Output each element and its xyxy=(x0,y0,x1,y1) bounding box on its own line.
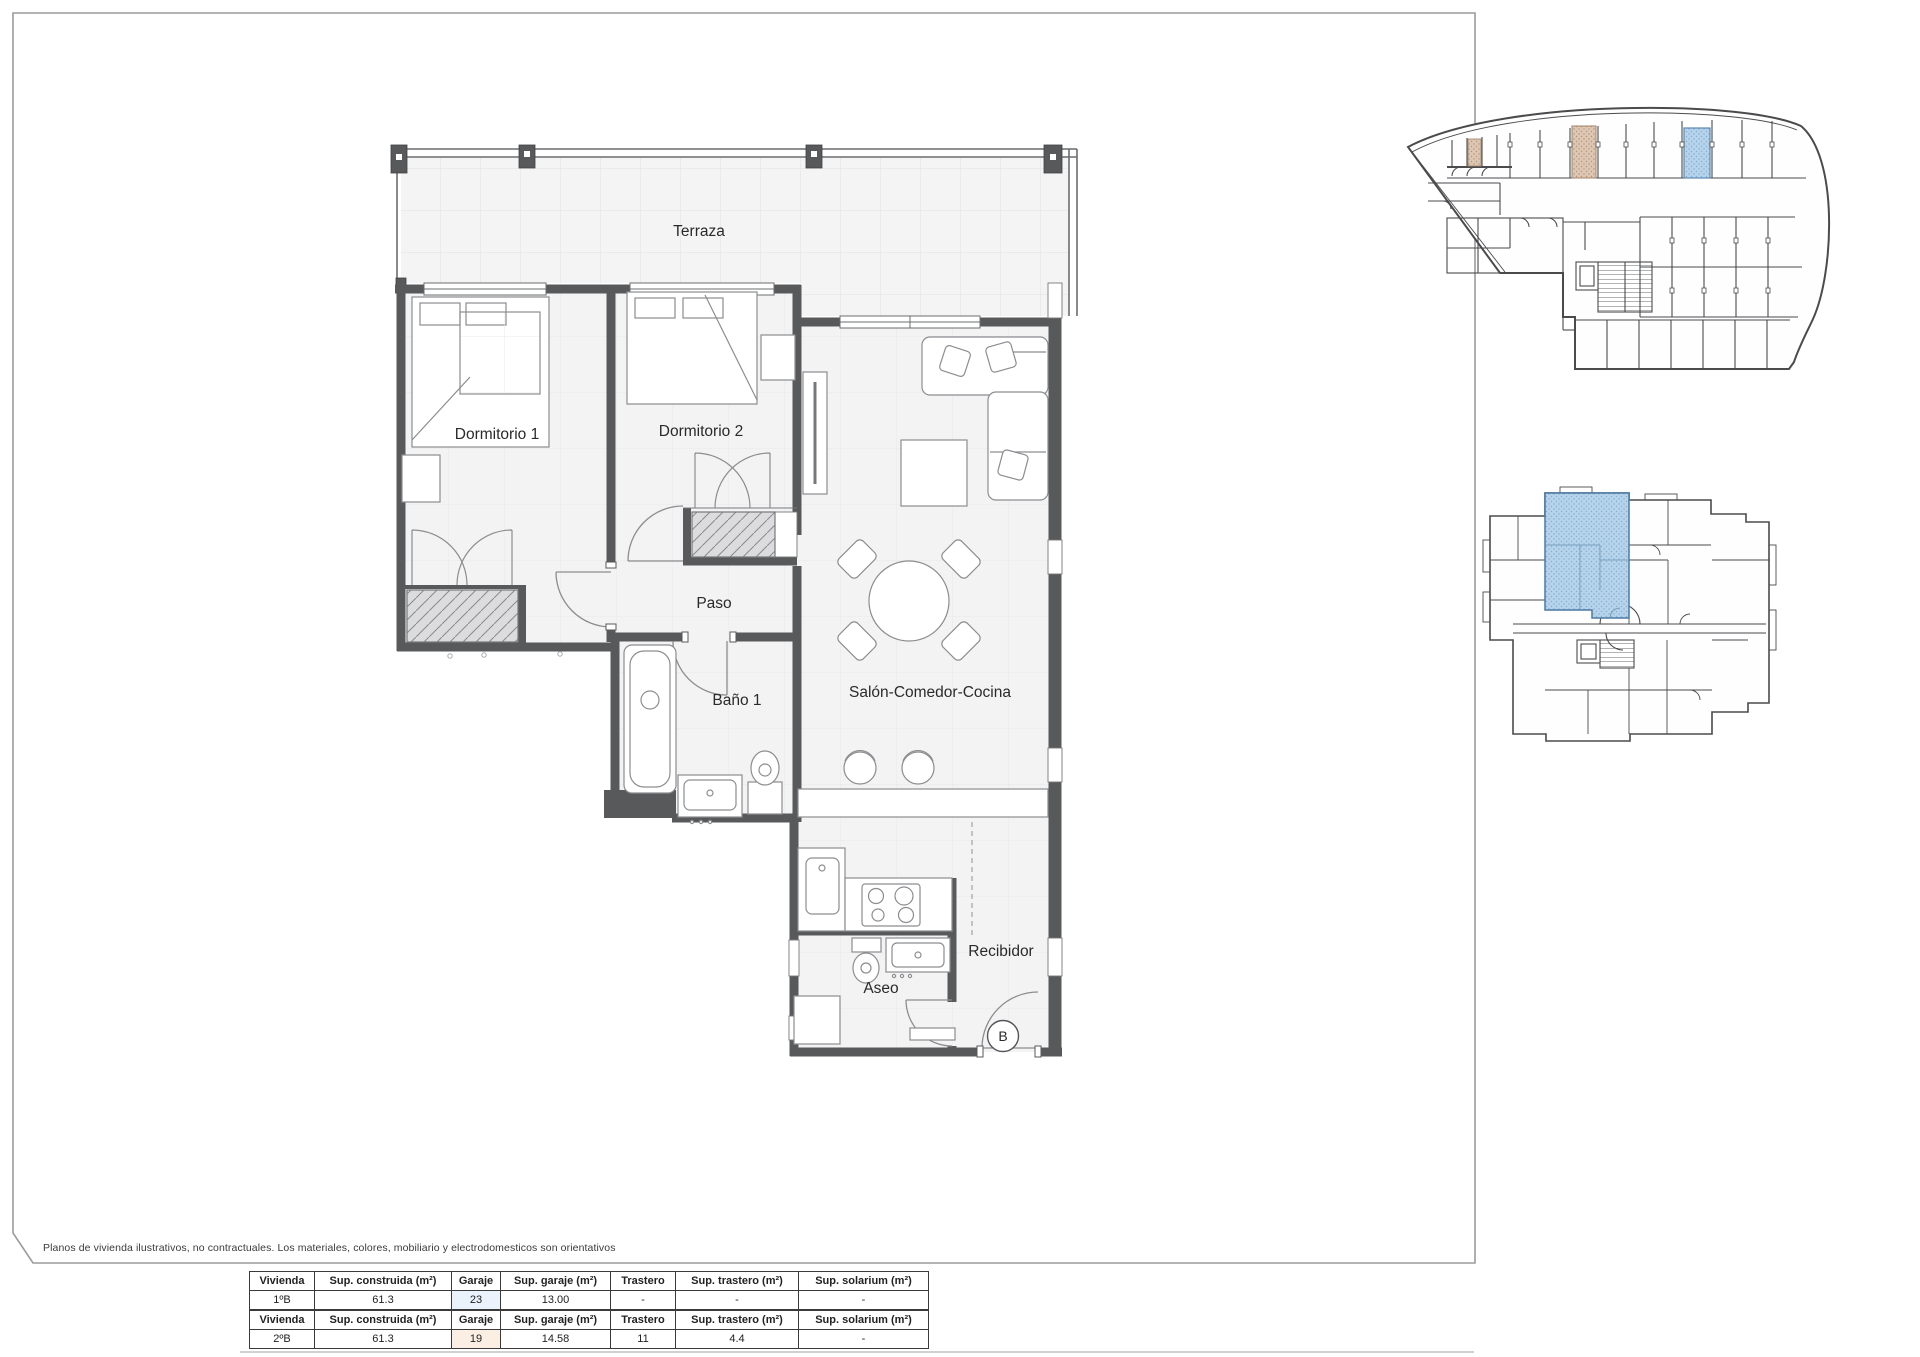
wall-block xyxy=(604,790,676,818)
cell-vivienda: 1ºB xyxy=(250,1291,315,1310)
col-header: Trastero xyxy=(611,1311,676,1330)
cell-sup-construida: 61.3 xyxy=(315,1291,452,1310)
col-header: Sup. garaje (m²) xyxy=(501,1311,611,1330)
disclaimer-text: Planos de vivienda ilustrativos, no cont… xyxy=(43,1242,616,1254)
table-row: 1ºB 61.3 23 13.00 - - - xyxy=(250,1291,929,1310)
plan-drawing: B Terraza Dormitorio 1 Dormitorio 2 Paso… xyxy=(0,0,1920,1357)
room-label-salon: Salón-Comedor-Cocina xyxy=(849,684,1011,701)
cell-sup-garaje: 13.00 xyxy=(501,1291,611,1310)
unit-letter: B xyxy=(998,1028,1007,1044)
col-header: Sup. solarium (m²) xyxy=(799,1311,929,1330)
room-label-paso: Paso xyxy=(696,595,731,612)
cell-sup-trastero: 4.4 xyxy=(676,1330,799,1349)
room-label-aseo: Aseo xyxy=(863,980,898,997)
plan-micro-marks xyxy=(448,652,562,658)
garage-space-highlight-blue xyxy=(1684,128,1710,178)
cell-sup-solarium: - xyxy=(799,1291,929,1310)
garage-plan xyxy=(1408,108,1829,369)
key-plan-unit-highlight xyxy=(1545,493,1629,618)
col-header: Vivienda xyxy=(250,1311,315,1330)
table-row: 2ºB 61.3 19 14.58 11 4.4 - xyxy=(250,1330,929,1349)
col-header: Sup. garaje (m²) xyxy=(501,1272,611,1291)
unit-letter-badge: B xyxy=(988,1021,1019,1052)
surface-table-2: Vivienda Sup. construida (m²) Garaje Sup… xyxy=(249,1310,929,1349)
surface-tables: Vivienda Sup. construida (m²) Garaje Sup… xyxy=(249,1271,929,1349)
table-header-row: Vivienda Sup. construida (m²) Garaje Sup… xyxy=(250,1311,929,1330)
col-header: Sup. construida (m²) xyxy=(315,1311,452,1330)
storage-room-highlight-tan xyxy=(1468,139,1481,166)
col-header: Sup. trastero (m²) xyxy=(676,1272,799,1291)
room-label-bano1: Baño 1 xyxy=(712,692,761,709)
cell-sup-garaje: 14.58 xyxy=(501,1330,611,1349)
tv-unit xyxy=(803,372,827,494)
col-header: Trastero xyxy=(611,1272,676,1291)
cell-garaje: 23 xyxy=(452,1291,501,1310)
col-header: Sup. construida (m²) xyxy=(315,1272,452,1291)
col-header: Vivienda xyxy=(250,1272,315,1291)
room-label-recibidor: Recibidor xyxy=(968,943,1033,960)
room-label-dormitorio1: Dormitorio 1 xyxy=(455,426,539,443)
cell-sup-trastero: - xyxy=(676,1291,799,1310)
garage-space-highlight-tan xyxy=(1572,126,1596,178)
room-label-terraza: Terraza xyxy=(673,223,725,240)
cell-sup-solarium: - xyxy=(799,1330,929,1349)
plan-sheet: B Terraza Dormitorio 1 Dormitorio 2 Paso… xyxy=(0,0,1920,1357)
cell-garaje: 19 xyxy=(452,1330,501,1349)
col-header: Sup. trastero (m²) xyxy=(676,1311,799,1330)
cell-trastero: 11 xyxy=(611,1330,676,1349)
surface-table-1: Vivienda Sup. construida (m²) Garaje Sup… xyxy=(249,1271,929,1310)
building-key-plan xyxy=(1483,487,1776,741)
col-header: Sup. solarium (m²) xyxy=(799,1272,929,1291)
cell-trastero: - xyxy=(611,1291,676,1310)
room-label-dormitorio2: Dormitorio 2 xyxy=(659,423,743,440)
col-header: Garaje xyxy=(452,1311,501,1330)
cell-sup-construida: 61.3 xyxy=(315,1330,452,1349)
coffee-table xyxy=(901,440,967,506)
table-header-row: Vivienda Sup. construida (m²) Garaje Sup… xyxy=(250,1272,929,1291)
main-floor-plan: B Terraza Dormitorio 1 Dormitorio 2 Paso… xyxy=(391,145,1077,1057)
col-header: Garaje xyxy=(452,1272,501,1291)
cell-vivienda: 2ºB xyxy=(250,1330,315,1349)
